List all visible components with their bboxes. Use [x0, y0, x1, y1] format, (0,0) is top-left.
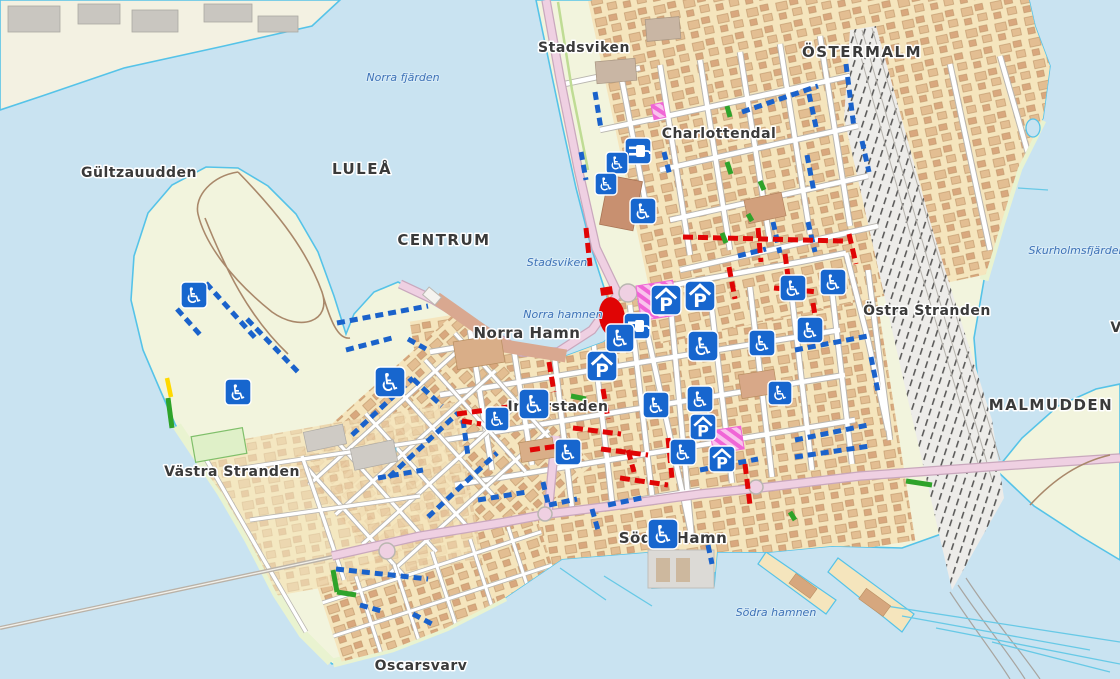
- wheelchair-parking-icon[interactable]: ♿: [768, 381, 792, 405]
- wheelchair-glyph: ♿: [379, 368, 401, 397]
- wheelchair-parking-icon[interactable]: ♿: [519, 389, 549, 419]
- wheelchair-parking-icon[interactable]: ♿: [749, 330, 775, 357]
- wheelchair-parking-icon[interactable]: ♿: [595, 173, 617, 196]
- place-label: Norra Hamn: [474, 324, 581, 342]
- place-label: Östra Stranden: [863, 301, 991, 319]
- garage-glyph: P: [716, 454, 728, 473]
- wheelchair-parking-icon[interactable]: ♿: [555, 439, 581, 466]
- wheelchair-glyph: ♿: [646, 394, 665, 419]
- parking-garage-icon[interactable]: P: [685, 281, 715, 312]
- parking-garage-icon[interactable]: P: [651, 285, 681, 316]
- wheelchair-glyph: ♿: [598, 175, 614, 196]
- wheelchair-glyph: ♿: [610, 326, 631, 352]
- place-label: ÖSTERMALM: [802, 42, 922, 61]
- green-parking-segment[interactable]: [748, 214, 752, 221]
- water-label: Södra hamnen: [736, 606, 817, 619]
- wheelchair-glyph: ♿: [690, 388, 709, 413]
- wheelchair-glyph: ♿: [609, 154, 625, 175]
- charging-station-icon[interactable]: [625, 138, 651, 164]
- wheelchair-glyph: ♿: [488, 408, 506, 431]
- wheelchair-parking-icon[interactable]: ♿: [630, 198, 656, 225]
- parking-garage-icon[interactable]: P: [587, 351, 617, 382]
- wheelchair-glyph: ♿: [783, 277, 802, 302]
- wheelchair-glyph: ♿: [692, 332, 714, 361]
- place-label: Oscarsvarv: [375, 658, 468, 674]
- wheelchair-glyph: ♿: [633, 200, 652, 225]
- water-label: Norra hamnen: [523, 308, 602, 321]
- place-label: V: [1110, 320, 1120, 336]
- wheelchair-parking-icon[interactable]: ♿: [688, 331, 718, 361]
- plug-prong: [629, 147, 636, 150]
- water-label: Norra fjärden: [366, 71, 439, 84]
- dock-building: [656, 558, 670, 582]
- wheelchair-glyph: ♿: [673, 441, 692, 466]
- wheelchair-glyph: ♿: [752, 332, 771, 357]
- wheelchair-parking-icon[interactable]: ♿: [820, 269, 846, 296]
- wheelchair-glyph: ♿: [558, 441, 577, 466]
- garage-glyph: P: [697, 422, 709, 441]
- wheelchair-glyph: ♿: [771, 382, 789, 405]
- map-canvas[interactable]: StadsvikenÖSTERMALMCharlottendalGültzauu…: [0, 0, 1120, 679]
- wheelchair-parking-icon[interactable]: ♿: [225, 379, 251, 406]
- pond: [1026, 119, 1040, 137]
- wheelchair-parking-icon[interactable]: ♿: [648, 519, 678, 549]
- parking-garage-icon[interactable]: P: [709, 446, 735, 473]
- wheelchair-parking-icon[interactable]: ♿: [797, 317, 823, 344]
- lulea-parking-map: StadsvikenÖSTERMALMCharlottendalGültzauu…: [0, 0, 1120, 679]
- wheelchair-parking-icon[interactable]: ♿: [687, 386, 713, 413]
- wheelchair-glyph: ♿: [184, 284, 203, 309]
- place-label: Charlottendal: [662, 126, 777, 142]
- wheelchair-glyph: ♿: [523, 390, 545, 419]
- plug-body: [635, 320, 644, 332]
- wheelchair-parking-icon[interactable]: ♿: [780, 275, 806, 302]
- place-label: LULEÅ: [332, 159, 392, 178]
- dock-building: [676, 558, 690, 582]
- green-parking-segment[interactable]: [337, 592, 356, 595]
- wheelchair-glyph: ♿: [800, 319, 819, 344]
- wheelchair-glyph: ♿: [228, 381, 247, 406]
- plug-body: [636, 145, 645, 157]
- wheelchair-glyph: ♿: [652, 520, 674, 549]
- wheelchair-glyph: ♿: [823, 271, 842, 296]
- wheelchair-parking-icon[interactable]: ♿: [485, 407, 509, 431]
- pedestrian-zone[interactable]: [651, 103, 666, 120]
- green-parking-segment[interactable]: [727, 106, 730, 117]
- wheelchair-parking-icon[interactable]: ♿: [181, 282, 207, 309]
- wheelchair-parking-icon[interactable]: ♿: [606, 324, 634, 352]
- garage-glyph: P: [693, 291, 707, 312]
- plug-prong: [629, 153, 636, 156]
- parking-garage-icon[interactable]: P: [690, 414, 716, 441]
- water-label: Stadsviken: [527, 256, 587, 269]
- garage-glyph: P: [595, 361, 609, 382]
- red-parking-segment[interactable]: [462, 421, 481, 424]
- wheelchair-parking-icon[interactable]: ♿: [643, 392, 669, 419]
- place-label: Stadsviken: [538, 40, 630, 56]
- place-label: MALMUDDEN: [989, 396, 1113, 414]
- wheelchair-parking-icon[interactable]: ♿: [670, 439, 696, 466]
- wheelchair-parking-icon[interactable]: ♿: [606, 152, 628, 175]
- place-label: Västra Stranden: [164, 464, 300, 480]
- place-label: CENTRUM: [397, 231, 490, 249]
- place-label: Gültzauudden: [81, 165, 197, 181]
- wheelchair-parking-icon[interactable]: ♿: [375, 367, 405, 397]
- water-label: Skurholmsfjärden: [1029, 244, 1120, 257]
- garage-glyph: P: [659, 295, 673, 316]
